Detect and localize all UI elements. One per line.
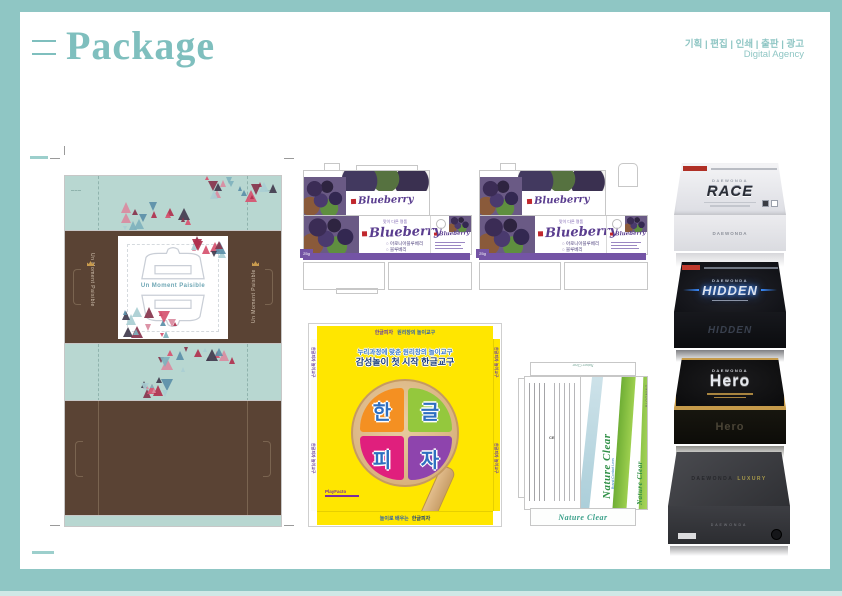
side-strip-text: 한글피자 놀이교구 bbox=[310, 443, 316, 474]
top-flap: 한글피자 원리창의 놀이교구 bbox=[317, 326, 493, 340]
side-panel: Blueberry bbox=[430, 216, 472, 254]
purple-stripe bbox=[303, 253, 470, 260]
main-panel: 맛이 다른 명품 Blueberry 아로니아블루베리 블루베리 Blueber… bbox=[479, 215, 648, 255]
slice-char: 피 bbox=[373, 444, 391, 473]
product-box-hidden[interactable]: DAEWONDA HIDDEN HIDDEN bbox=[674, 262, 786, 362]
info-line bbox=[611, 248, 639, 250]
box-front: Hero bbox=[674, 408, 786, 444]
triangle-shape bbox=[145, 324, 151, 331]
blueberry-branch-photo bbox=[342, 171, 429, 191]
info-line bbox=[611, 245, 637, 247]
crop-mark bbox=[284, 525, 294, 526]
info-line bbox=[435, 245, 461, 247]
handle-cutout bbox=[263, 441, 271, 477]
box-name: LUXURY bbox=[737, 476, 766, 482]
bottom-flap: Nature Clear bbox=[530, 508, 636, 526]
box-front: DAEWONDA bbox=[674, 215, 786, 251]
box-name: Hero bbox=[710, 373, 750, 391]
micro-text-line bbox=[704, 267, 778, 269]
instructions-panel: CE bbox=[524, 376, 582, 510]
bottom-flap-outline bbox=[479, 262, 561, 290]
triangle-shape bbox=[160, 357, 170, 367]
triangle-shape bbox=[139, 214, 147, 222]
triangle-shape bbox=[167, 350, 173, 356]
box-name: HIDDEN bbox=[702, 283, 758, 298]
publisher-logo: PlayFacto bbox=[325, 489, 359, 497]
flap-subtitle: 원리창의 놀이교구 bbox=[397, 329, 435, 336]
bottom-flap-title: 한글피자 bbox=[412, 515, 430, 522]
side-title: Nature Clear bbox=[636, 461, 644, 505]
crop-mark bbox=[50, 158, 60, 159]
margin-tick-bottom bbox=[32, 551, 54, 554]
blueberry-logo-text: Blueberry bbox=[615, 230, 646, 237]
product-box-hero[interactable]: DAEWONDA Hero Hero bbox=[674, 358, 786, 458]
seal-icon bbox=[434, 233, 437, 236]
title-mark-line-1 bbox=[32, 40, 56, 42]
seal-icon bbox=[351, 199, 356, 204]
bottom-tab-outline bbox=[336, 288, 378, 294]
slice-char: 글 bbox=[421, 396, 439, 425]
bottom-flap: 놀이로 배우는 한글피자 bbox=[317, 511, 493, 525]
triangle-shape bbox=[181, 367, 185, 372]
front-panel: Nature Clear Brand Contact Lens BLOOMING… bbox=[580, 376, 648, 510]
micro-text-line bbox=[704, 202, 756, 204]
glow-flare-right bbox=[761, 289, 777, 291]
side-flap-text: Un Moment Paisible bbox=[89, 253, 95, 307]
micro-text-line bbox=[711, 168, 777, 170]
triangle-shape bbox=[144, 307, 154, 318]
bottom-flap-outline bbox=[388, 262, 472, 290]
lid-panel: Blueberry bbox=[479, 170, 606, 217]
slice-char: 자 bbox=[421, 444, 439, 473]
triangle-shape bbox=[162, 390, 168, 397]
triangle-cluster bbox=[157, 346, 241, 374]
triangle-shape bbox=[211, 251, 217, 257]
red-label bbox=[683, 166, 707, 171]
fold-line bbox=[98, 176, 99, 231]
gold-text-line bbox=[707, 393, 753, 395]
triangle-shape bbox=[132, 307, 142, 317]
dieline-front-panel: Un Moment Paisible Un Moment Paisible Un… bbox=[64, 230, 282, 345]
triangle-shape bbox=[156, 377, 162, 383]
glow-row: HIDDEN bbox=[683, 283, 777, 298]
triangle-shape bbox=[163, 331, 169, 338]
pizza-slice-orange: 한 bbox=[360, 388, 404, 432]
triangle-cluster bbox=[111, 374, 175, 399]
glow-flare-left bbox=[683, 289, 699, 291]
nature-clear-dieline[interactable]: Nature Clear CE Nature Clear Brand Conta… bbox=[518, 362, 650, 524]
side-strip-text: 한글피자 놀이교구 bbox=[493, 443, 499, 474]
product-subtitle: Brand Contact Lens bbox=[611, 458, 615, 489]
product-box-race[interactable]: DAEWONDA RACE DAEWONDA bbox=[674, 163, 786, 267]
triangle-shape bbox=[158, 311, 170, 323]
info-line bbox=[435, 248, 463, 250]
handle-cutout bbox=[265, 269, 273, 305]
triangle-cluster bbox=[118, 306, 180, 339]
bottom-flap-prefix: 놀이로 배우는 bbox=[380, 515, 409, 522]
white-label bbox=[678, 533, 696, 539]
furniture-dieline[interactable]: Un Moment Paisible Un Moment Paisible Un… bbox=[64, 158, 280, 528]
page-title: Package bbox=[66, 22, 215, 69]
bottom-flap-outline bbox=[303, 262, 385, 290]
side-flap-text: Un Moment Paisible bbox=[251, 269, 257, 323]
triangle-shape bbox=[132, 209, 138, 215]
artwork-panel: Un Moment Paisible bbox=[118, 236, 228, 339]
top-flap-text: Nature Clear bbox=[531, 363, 635, 368]
side-strip-text: 한글피자 놀이교구 bbox=[493, 347, 499, 378]
reflection bbox=[670, 546, 787, 556]
triangle-shape bbox=[176, 351, 184, 360]
side-panel-info-lines bbox=[611, 240, 643, 249]
triangle-shape bbox=[173, 322, 177, 326]
triangle-cluster bbox=[113, 202, 193, 231]
dieline-top-band bbox=[64, 175, 282, 232]
blueberry-logo-text: Blueberry bbox=[358, 194, 414, 207]
triangle-shape bbox=[208, 181, 218, 191]
seal-icon bbox=[610, 233, 613, 236]
red-label bbox=[682, 265, 700, 270]
pizza-slice-green: 글 bbox=[408, 388, 452, 432]
agency-text: Digital Agency bbox=[584, 49, 804, 60]
triangle-shape bbox=[149, 202, 157, 211]
pizza-main-panel: 누리과정에 맞춘 원리창의 놀이교구 감성놀이 첫 시작 한글교구 한 글 피 … bbox=[317, 339, 493, 511]
box-lid: DAEWONDA RACE bbox=[674, 163, 786, 215]
hang-hole-outline bbox=[436, 219, 446, 229]
triangle-shape bbox=[203, 348, 207, 352]
handle-cutout bbox=[75, 441, 83, 477]
triangle-shape bbox=[165, 212, 171, 218]
box-lid: DAEWONDA LUXURY bbox=[668, 452, 790, 506]
blueberry-logo-text: Blueberry bbox=[534, 194, 590, 207]
blueberry-logo: Blueberry bbox=[527, 194, 590, 207]
blueberry-dieline-2[interactable]: Blueberry 맛이 다른 명품 Blueberry 아로니아블루베리 블루… bbox=[472, 163, 646, 293]
margin-tick-top bbox=[30, 156, 48, 159]
triangle-shape bbox=[205, 176, 209, 180]
blueberry-logo-text: Blueberry bbox=[439, 230, 470, 237]
ce-mark: CE bbox=[549, 435, 555, 440]
weight-tag: 25g bbox=[476, 249, 489, 258]
triangle-cluster bbox=[180, 236, 228, 260]
publisher-logo-text: PlayFacto bbox=[325, 489, 359, 494]
triangle-shape bbox=[152, 388, 156, 393]
blueberry-logo: Blueberry bbox=[351, 194, 414, 207]
lid-panel: Blueberry bbox=[303, 170, 430, 217]
flap-title: 한글피자 bbox=[375, 329, 393, 336]
triangle-shape bbox=[238, 186, 242, 191]
box-front: HIDDEN bbox=[674, 312, 786, 348]
front-logo: DAEWONDA bbox=[711, 523, 748, 527]
triangle-shape bbox=[215, 241, 223, 249]
slice-char: 한 bbox=[373, 396, 391, 425]
side-panel-info-lines bbox=[435, 240, 467, 249]
info-line bbox=[611, 242, 641, 244]
bottom-flap-outline bbox=[564, 262, 648, 290]
product-box-luxury[interactable]: DAEWONDA LUXURY DAEWONDA bbox=[668, 452, 790, 556]
triangle-shape bbox=[194, 349, 202, 357]
weight-tag: 25g bbox=[300, 249, 313, 258]
triangle-shape bbox=[133, 329, 139, 335]
front-logo: Hero bbox=[715, 421, 744, 433]
checkbox-icon bbox=[771, 200, 778, 207]
triangle-shape bbox=[123, 310, 127, 315]
bottom-flap-title: Nature Clear bbox=[558, 513, 607, 522]
front-logo: DAEWONDA bbox=[713, 231, 748, 236]
top-flap: Nature Clear bbox=[530, 362, 636, 376]
blueberry-logo-small: Blueberry bbox=[434, 230, 470, 237]
lid-logo-row: DAEWONDA LUXURY bbox=[691, 476, 766, 482]
crop-mark bbox=[64, 146, 65, 155]
instructions-text-block bbox=[529, 383, 549, 501]
triangle-shape bbox=[193, 241, 203, 251]
pizza-paddle: 한 글 피 자 bbox=[351, 379, 459, 487]
triangle-shape bbox=[229, 357, 235, 364]
dieline-bottom-strip bbox=[64, 515, 282, 527]
triangle-shape bbox=[121, 213, 131, 223]
fold-line bbox=[247, 344, 248, 401]
portfolio-page: Package 기획 | 편집 | 인쇄 | 출판 | 광고 Digital A… bbox=[0, 0, 842, 596]
purple-stripe bbox=[479, 253, 646, 260]
triangle-shape bbox=[215, 348, 223, 356]
blueberry-logo-small: Blueberry bbox=[610, 230, 646, 237]
box-lid: DAEWONDA HIDDEN bbox=[674, 262, 786, 312]
box-lid: DAEWONDA Hero bbox=[674, 358, 786, 408]
pizza-slice-magenta: 피 bbox=[360, 436, 404, 480]
neck-tab-outline bbox=[618, 163, 638, 187]
fold-line bbox=[71, 190, 81, 191]
blueberry-branch-photo bbox=[518, 171, 605, 191]
seal-icon bbox=[538, 231, 543, 236]
triangle-shape bbox=[228, 181, 234, 187]
checkbox-checked-icon bbox=[762, 200, 769, 207]
front-logo: HIDDEN bbox=[708, 325, 752, 336]
handle-cutout bbox=[73, 269, 81, 305]
box-front: DAEWONDA bbox=[668, 506, 790, 544]
side-strip-text: 한글피자 놀이교구 bbox=[310, 347, 316, 378]
info-line bbox=[435, 242, 465, 244]
triangle-shape bbox=[210, 190, 218, 199]
services-text: 기획 | 편집 | 인쇄 | 출판 | 광고 bbox=[584, 36, 804, 50]
product-items: 아로니아블루베리 블루베리 bbox=[386, 241, 423, 253]
green-wave-band bbox=[612, 376, 636, 510]
crown-logo-icon bbox=[252, 261, 259, 266]
dieline-back-panel bbox=[64, 400, 282, 517]
seal-icon bbox=[527, 199, 532, 204]
blueberry-photo bbox=[480, 177, 522, 216]
right-side-strip: 한글피자 놀이교구 한글피자 놀이교구 bbox=[493, 339, 500, 511]
crop-mark bbox=[284, 158, 294, 159]
triangle-cluster bbox=[205, 176, 281, 206]
dieline-mid-band bbox=[64, 343, 282, 402]
triangle-shape bbox=[269, 184, 277, 193]
frame-bottom-highlight bbox=[0, 591, 842, 596]
instructions-text-block bbox=[554, 383, 576, 501]
triangle-shape bbox=[181, 217, 185, 222]
title-mark-line-2 bbox=[32, 53, 56, 55]
micro-text-line bbox=[712, 300, 748, 302]
triangle-shape bbox=[184, 347, 188, 352]
side-panel: Blueberry bbox=[606, 216, 648, 254]
triangle-shape bbox=[250, 195, 254, 199]
micro-text-line bbox=[710, 205, 750, 207]
seal-icon bbox=[362, 231, 367, 236]
triangle-shape bbox=[202, 245, 210, 254]
fold-line bbox=[98, 344, 99, 401]
brand-text: BLOOMING bbox=[645, 384, 648, 407]
box-name: RACE bbox=[707, 183, 754, 200]
triangle-shape bbox=[151, 211, 157, 218]
panel-caption: Un Moment Paisible bbox=[118, 283, 228, 289]
hang-hole-outline bbox=[612, 219, 622, 229]
triangle-shape bbox=[121, 202, 131, 213]
blueberry-dieline-1[interactable]: Blueberry 맛이 다른 명품 Blueberry 아로니아블루베리 블루… bbox=[296, 163, 470, 293]
pizza-box-artwork[interactable]: 한글피자 원리창의 놀이교구 한글피자 놀이교구 한글피자 놀이교구 한글피자 … bbox=[308, 323, 502, 527]
main-panel: 맛이 다른 명품 Blueberry 아로니아블루베리 블루베리 Blueber… bbox=[303, 215, 472, 255]
product-items: 아로니아블루베리 블루베리 bbox=[562, 241, 599, 253]
gold-text-line bbox=[714, 397, 746, 399]
box-brand: DAEWONDA bbox=[691, 476, 733, 482]
round-badge-icon bbox=[771, 529, 782, 540]
crop-mark bbox=[50, 525, 60, 526]
blueberry-photo bbox=[304, 177, 346, 216]
logo-underline bbox=[325, 495, 359, 497]
headline-2: 감성놀이 첫 시작 한글교구 bbox=[317, 355, 493, 368]
